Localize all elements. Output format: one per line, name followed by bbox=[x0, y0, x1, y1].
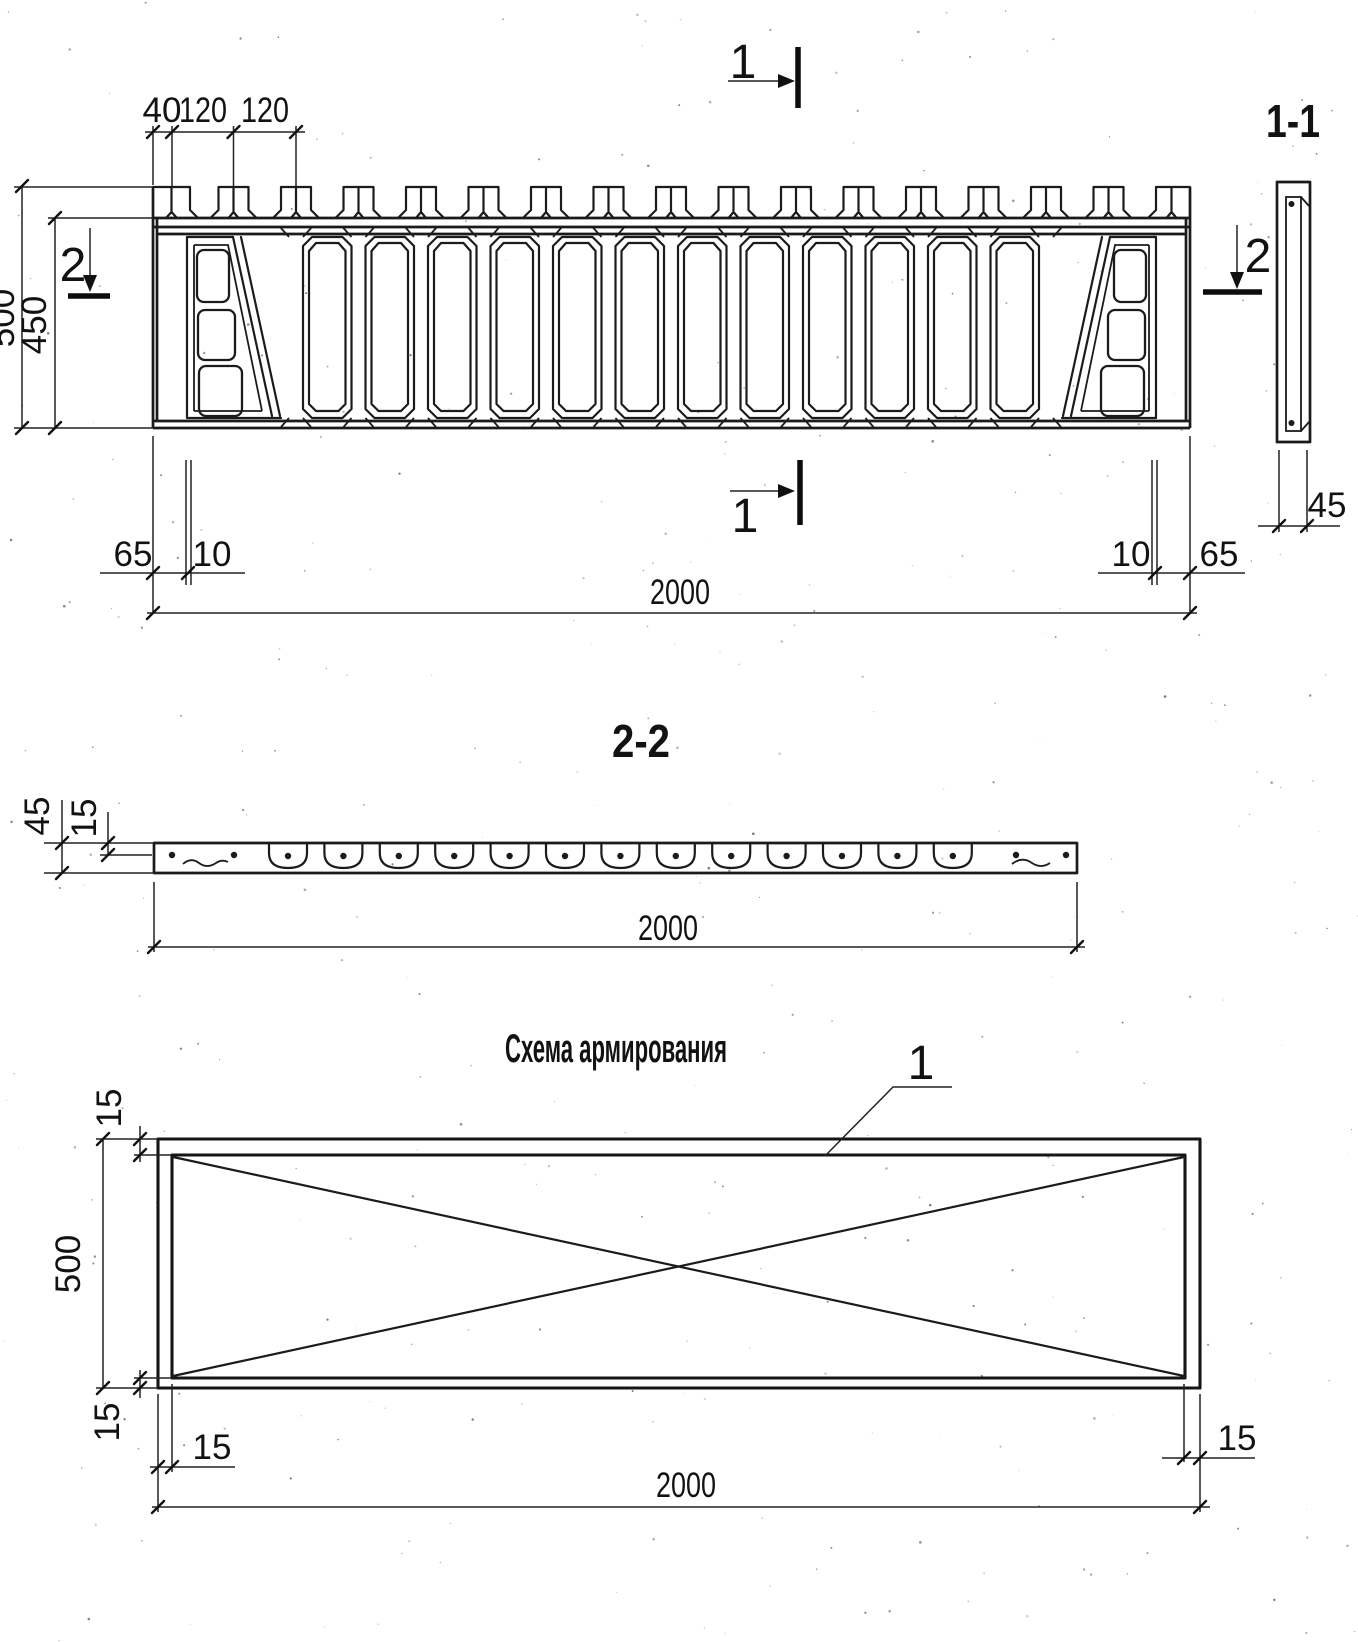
dim-tooth-pitch-a: 120 bbox=[179, 91, 227, 130]
drawing-sheet: 40 120 120 500 450 65 10 10 65 2000 1 1 … bbox=[0, 0, 1358, 1642]
section-cut-1-bottom: 1 bbox=[730, 460, 800, 543]
section-2-2-title: 2-2 bbox=[612, 715, 670, 767]
dim-panel-length: 2000 bbox=[650, 573, 710, 612]
dim-strip-thickness: 45 bbox=[18, 797, 57, 836]
technical-drawing: 40 120 120 500 450 65 10 10 65 2000 1 1 … bbox=[0, 0, 1358, 1642]
rebar-callout-label: 1 bbox=[908, 1037, 935, 1090]
baluster-cutouts bbox=[169, 844, 1069, 868]
arrow-down-icon bbox=[1230, 272, 1244, 289]
rebar-diagonals bbox=[173, 1157, 1184, 1376]
dim-left-cover: 15 bbox=[193, 1428, 232, 1467]
section-cut-1-top: 1 bbox=[728, 36, 798, 108]
dim-rebar-cover: 15 bbox=[65, 799, 104, 838]
dim-right-margin: 65 bbox=[1200, 535, 1239, 574]
callout-leader bbox=[825, 1087, 952, 1156]
section-profile-groove bbox=[1286, 197, 1301, 431]
reinforcement-title: Схема армирования bbox=[505, 1027, 727, 1071]
cut-mark-1-bottom-label: 1 bbox=[732, 490, 759, 543]
rebar-dot bbox=[1289, 420, 1295, 426]
dim-body-height: 450 bbox=[15, 296, 54, 354]
dim-left-margin: 65 bbox=[114, 535, 153, 574]
panel-teeth bbox=[153, 187, 1190, 218]
arrow-right-icon bbox=[778, 74, 795, 88]
section-cut-2-left: 2 bbox=[60, 228, 110, 296]
section-1-1-view: 1-1 45 bbox=[1258, 95, 1346, 532]
dim-top-cover: 15 bbox=[90, 1089, 129, 1128]
left-end-post bbox=[187, 237, 281, 418]
arrow-right-icon bbox=[778, 484, 795, 498]
front-elevation-view: 40 120 120 500 450 65 10 10 65 2000 1 1 … bbox=[0, 36, 1271, 619]
cut-mark-2-right-label: 2 bbox=[1245, 230, 1272, 283]
section-1-1-title: 1-1 bbox=[1266, 95, 1320, 147]
dim-edge-offset: 40 bbox=[143, 91, 182, 130]
reinforcement-scheme-view: Схема армирования 1 15 500 15 15 15 2000 bbox=[49, 1027, 1256, 1513]
cut-mark-1-top-label: 1 bbox=[730, 36, 757, 89]
section-profile-outline bbox=[1277, 182, 1310, 442]
dim-right-cover: 15 bbox=[1218, 1419, 1257, 1458]
section-2-2-view: 2-2 45 15 2000 bbox=[18, 715, 1085, 953]
dim-bottom-cover: 15 bbox=[88, 1403, 127, 1442]
dim-scheme-length: 2000 bbox=[656, 1466, 716, 1505]
dim-section-thickness: 45 bbox=[1308, 486, 1347, 525]
section-cut-2-right: 2 bbox=[1203, 225, 1271, 292]
panel-outline bbox=[158, 1139, 1200, 1388]
dim-right-groove: 10 bbox=[1112, 535, 1151, 574]
dim-tooth-pitch-b: 120 bbox=[241, 91, 289, 130]
rebar-dot bbox=[1289, 201, 1295, 207]
dim-scheme-height: 500 bbox=[49, 1235, 88, 1293]
dim-left-groove: 10 bbox=[193, 535, 232, 574]
right-end-post bbox=[1062, 237, 1156, 418]
cut-mark-2-left-label: 2 bbox=[60, 239, 87, 292]
panel-balusters bbox=[280, 227, 1062, 427]
dim-strip-length: 2000 bbox=[638, 909, 698, 948]
